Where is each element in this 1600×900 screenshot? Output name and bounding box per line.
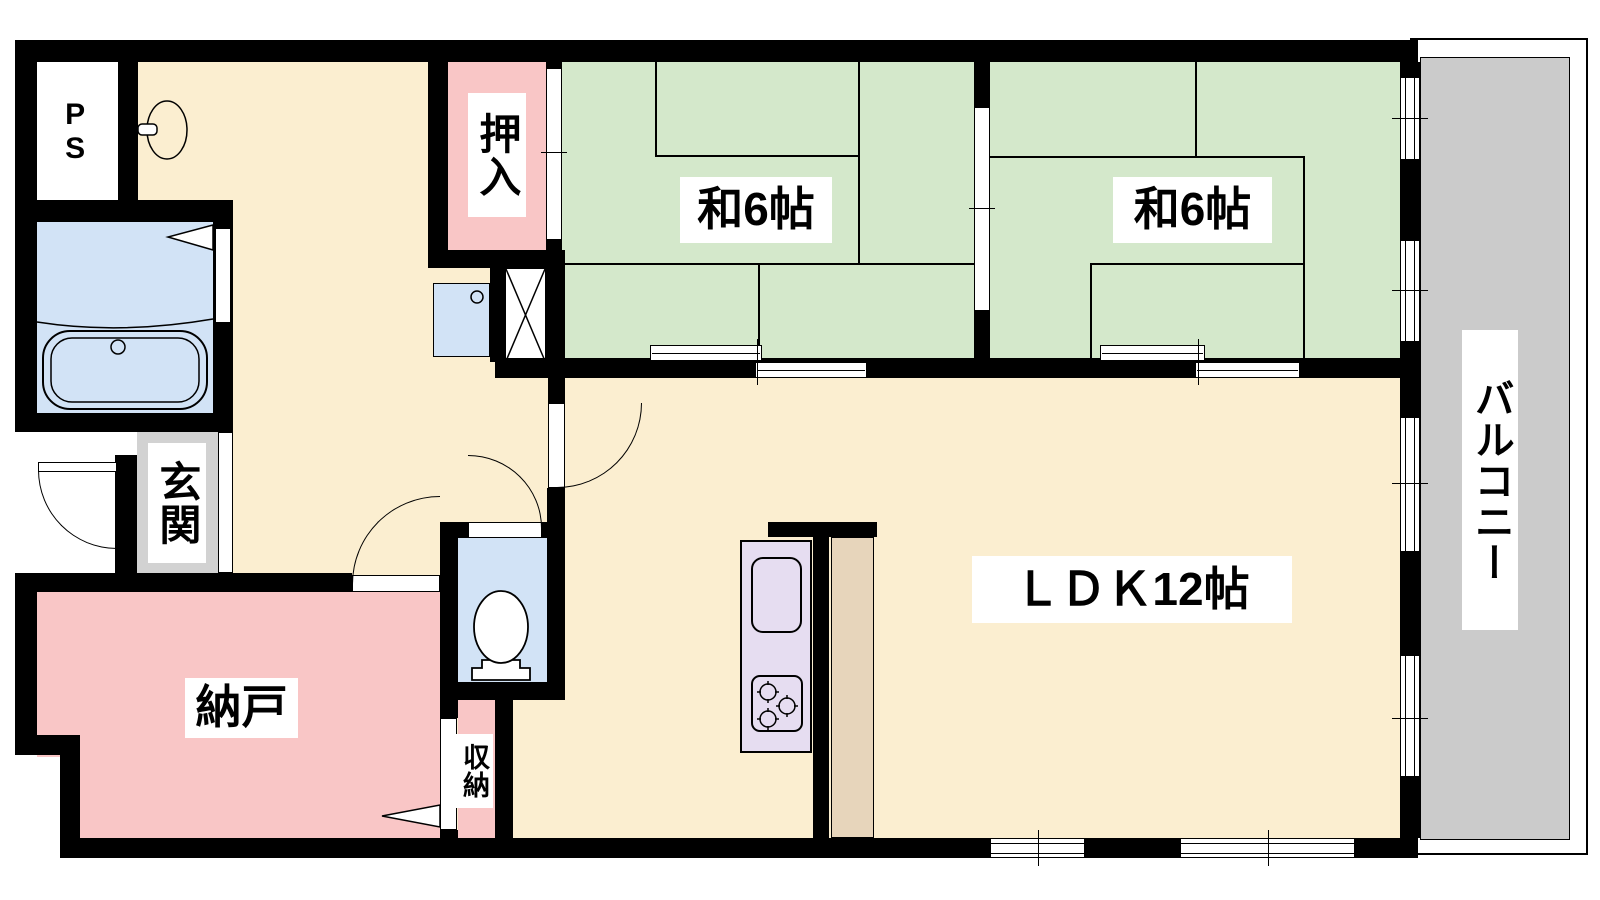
corner-notch (0, 757, 60, 900)
window-tick (1392, 718, 1428, 719)
fusuma-tick (969, 208, 995, 209)
label-washitsu1: 和6帖 (680, 177, 832, 243)
sliding-door (1100, 345, 1205, 361)
label-balcony: バルコニー (1462, 330, 1518, 630)
floor-plan: PS 押入 和6帖 和6帖 バルコニー ＬＤＫ12帖 玄関 納戸 収納 (0, 0, 1600, 900)
fusuma-tick (541, 152, 567, 153)
label-ldk: ＬＤＫ12帖 (972, 556, 1292, 623)
tatami-line (1090, 263, 1304, 265)
fusuma-oshiire (546, 68, 562, 240)
wall (440, 830, 458, 844)
window-tick (1392, 483, 1428, 484)
window (1400, 417, 1420, 552)
sliding-door (1195, 362, 1300, 378)
tatami-line (990, 156, 1304, 158)
room-bathroom (37, 222, 213, 413)
wall (440, 682, 565, 700)
wall (118, 62, 138, 200)
fusuma-between-rooms (974, 107, 990, 311)
wall (15, 40, 37, 432)
wall (495, 700, 513, 838)
wall (490, 268, 505, 362)
wall (974, 311, 990, 358)
room-toilet (458, 538, 547, 682)
duct-shaft-box (505, 268, 546, 362)
wall (15, 573, 352, 592)
wall (546, 238, 562, 252)
sliding-door (755, 362, 867, 378)
wall (428, 62, 448, 268)
label-oshiire: 押入 (468, 93, 526, 217)
label-nando: 納戸 (185, 678, 298, 738)
window-tick (1038, 830, 1039, 866)
tatami-line (655, 62, 657, 155)
window (1400, 240, 1420, 342)
wall (547, 488, 565, 700)
wall (15, 735, 80, 755)
label-ps: PS (46, 88, 104, 176)
tatami-line (1195, 62, 1197, 156)
window-tick (1392, 290, 1428, 291)
wall (115, 455, 137, 573)
washing-machine-pan (433, 283, 490, 357)
label-shuno: 収納 (455, 734, 493, 808)
tatami-line (1090, 263, 1092, 358)
kitchen-counter (740, 540, 812, 753)
wall (546, 268, 565, 362)
tatami-line (758, 263, 760, 358)
window-tick (1392, 118, 1428, 119)
wall (15, 40, 1418, 62)
label-genkan: 玄関 (148, 443, 206, 563)
wall (15, 573, 37, 755)
bathroom-sliding-door (215, 228, 231, 323)
wall (974, 62, 990, 107)
wall (15, 413, 233, 432)
window-tick (1268, 830, 1269, 866)
kitchen-bar-counter (831, 537, 874, 838)
wall (813, 522, 829, 840)
sliding-door (650, 345, 762, 361)
tatami-line (1303, 156, 1305, 358)
genkan-step (218, 432, 233, 573)
tatami-line (562, 263, 974, 265)
wall (768, 522, 877, 537)
wall (428, 250, 565, 268)
sliding-door-tick (757, 339, 758, 385)
tatami-line (858, 62, 860, 263)
tatami-line (655, 155, 858, 157)
sliding-door-tick (1198, 339, 1199, 385)
window (1400, 655, 1420, 777)
label-washitsu2: 和6帖 (1113, 177, 1272, 243)
wall (15, 200, 233, 222)
